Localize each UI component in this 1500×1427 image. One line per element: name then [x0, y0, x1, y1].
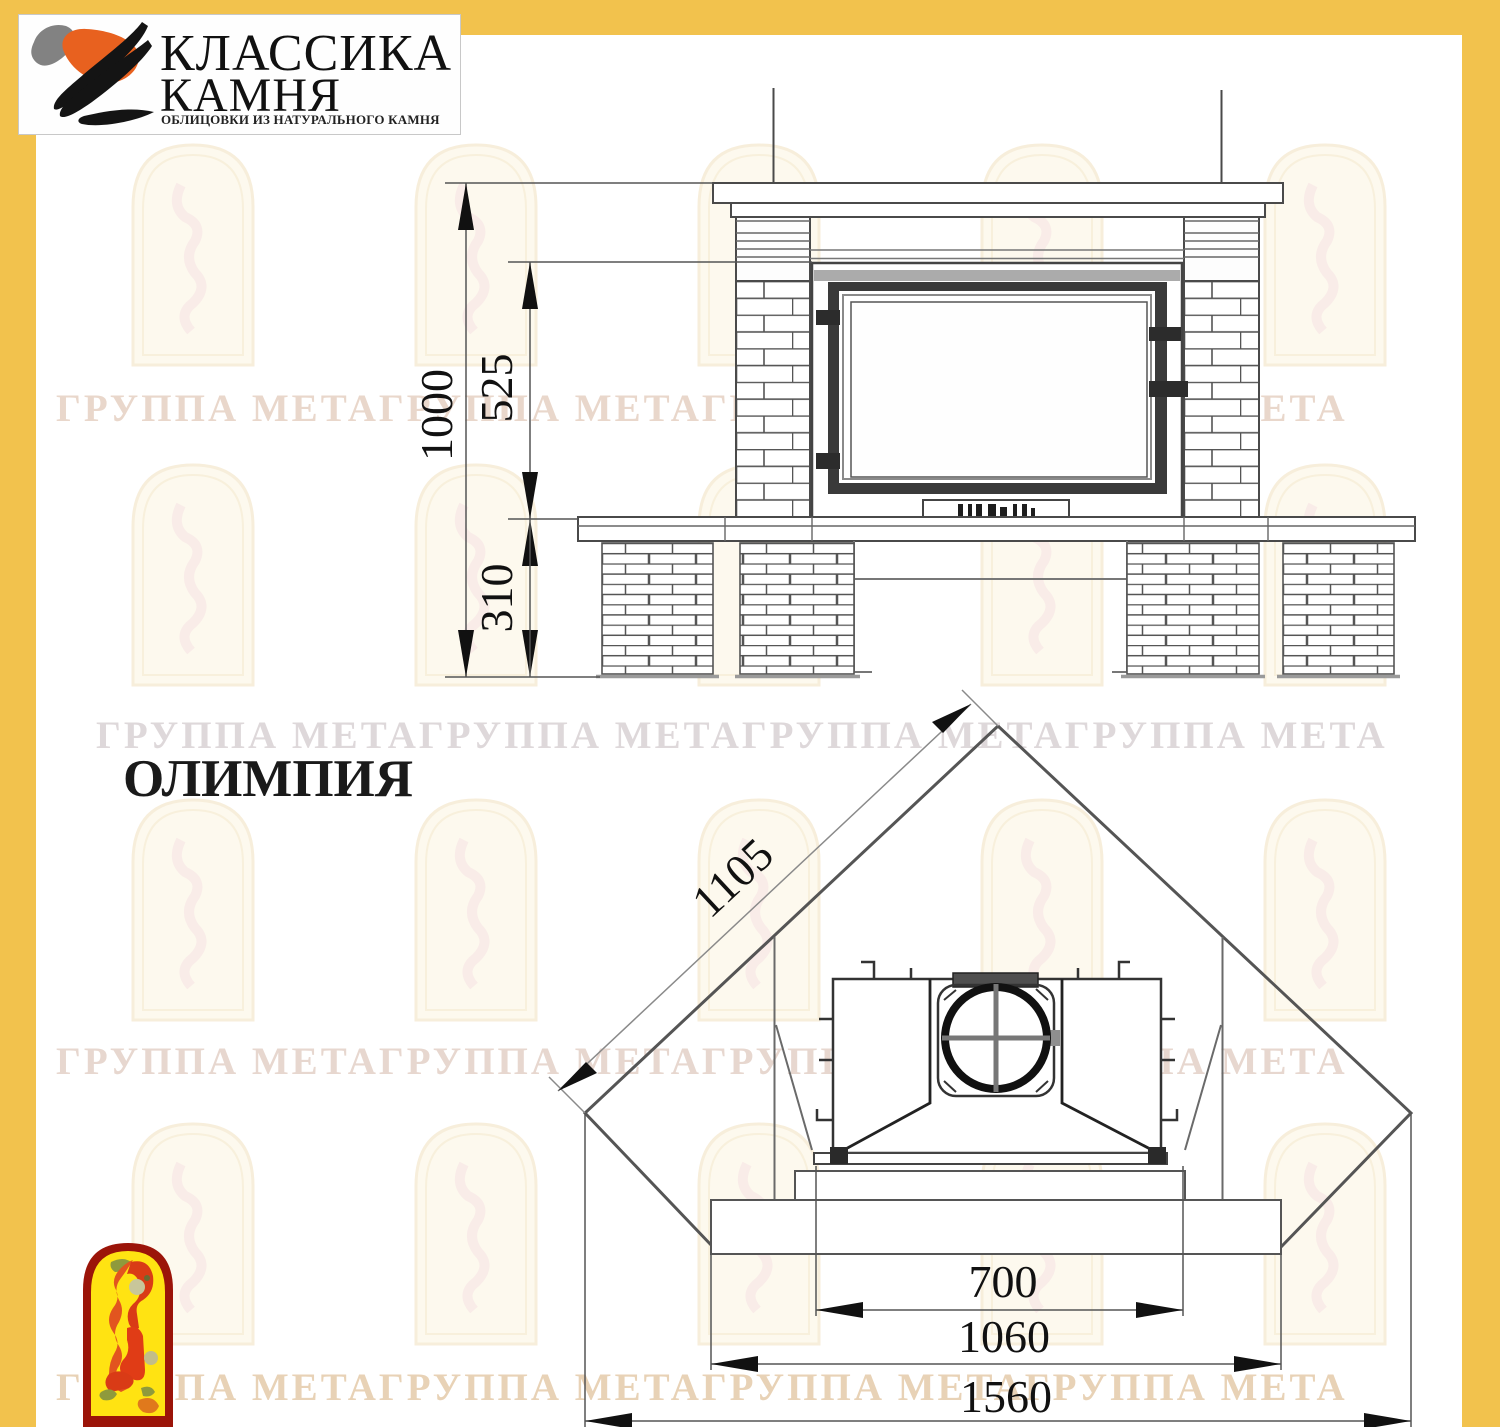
svg-text:525: 525: [471, 354, 522, 423]
svg-text:1060: 1060: [958, 1311, 1050, 1362]
svg-text:1105: 1105: [682, 828, 783, 927]
svg-text:1000: 1000: [411, 369, 462, 461]
svg-text:700: 700: [969, 1256, 1038, 1307]
svg-text:310: 310: [471, 564, 522, 633]
svg-text:1560: 1560: [960, 1371, 1052, 1422]
